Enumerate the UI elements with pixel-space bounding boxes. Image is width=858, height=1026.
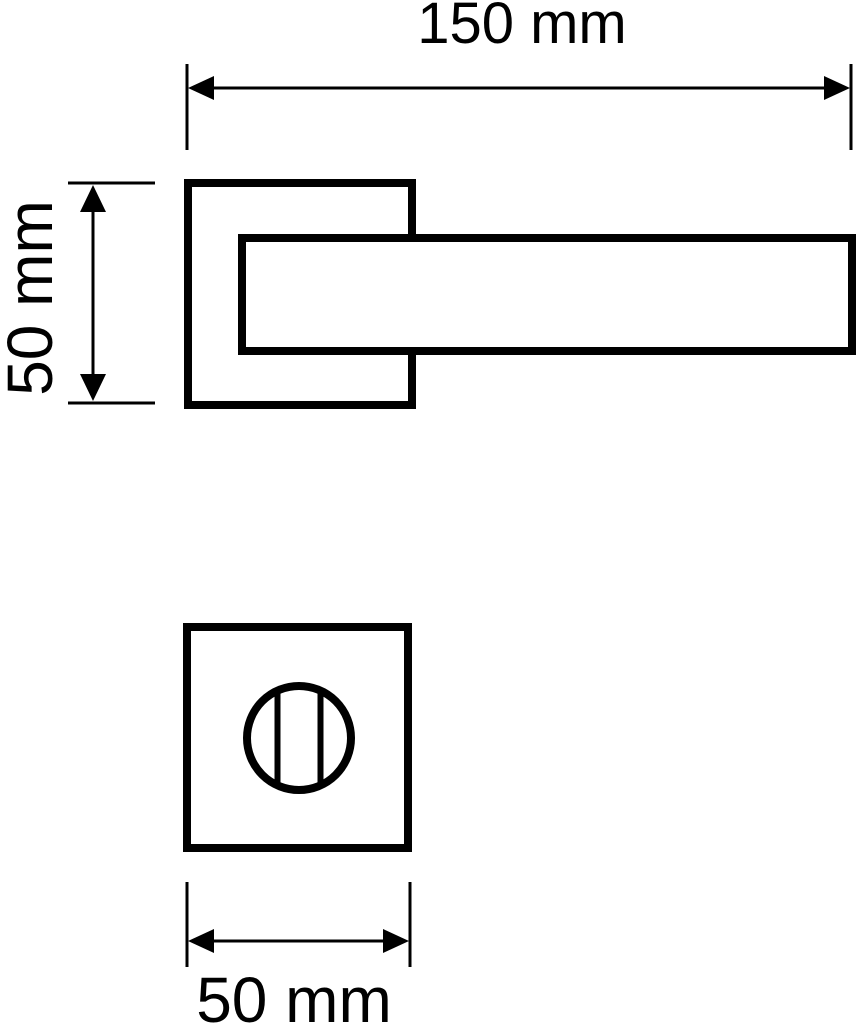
top-dimension-label: 150 mm [417,0,627,56]
top-dim-arrow-right-icon [824,76,850,100]
thumbturn-circle [247,686,351,790]
lever-handle-bar [242,238,852,351]
bottom-dim-arrow-right-icon [383,929,409,953]
left-dim-arrow-down-icon [80,374,106,401]
technical-drawing-canvas: 150 mm 50 mm 50 mm [0,0,858,1026]
dimension-labels: 150 mm 50 mm 50 mm [0,0,627,1026]
technical-drawing-page: 150 mm 50 mm 50 mm [0,0,858,1026]
top-dim-arrow-left-icon [188,76,214,100]
bottom-dimension-label: 50 mm [196,964,392,1026]
bottom-dim-arrow-left-icon [188,929,214,953]
part-outlines [187,183,852,848]
left-dimension-label: 50 mm [0,200,66,396]
left-dim-arrow-up-icon [80,185,106,212]
